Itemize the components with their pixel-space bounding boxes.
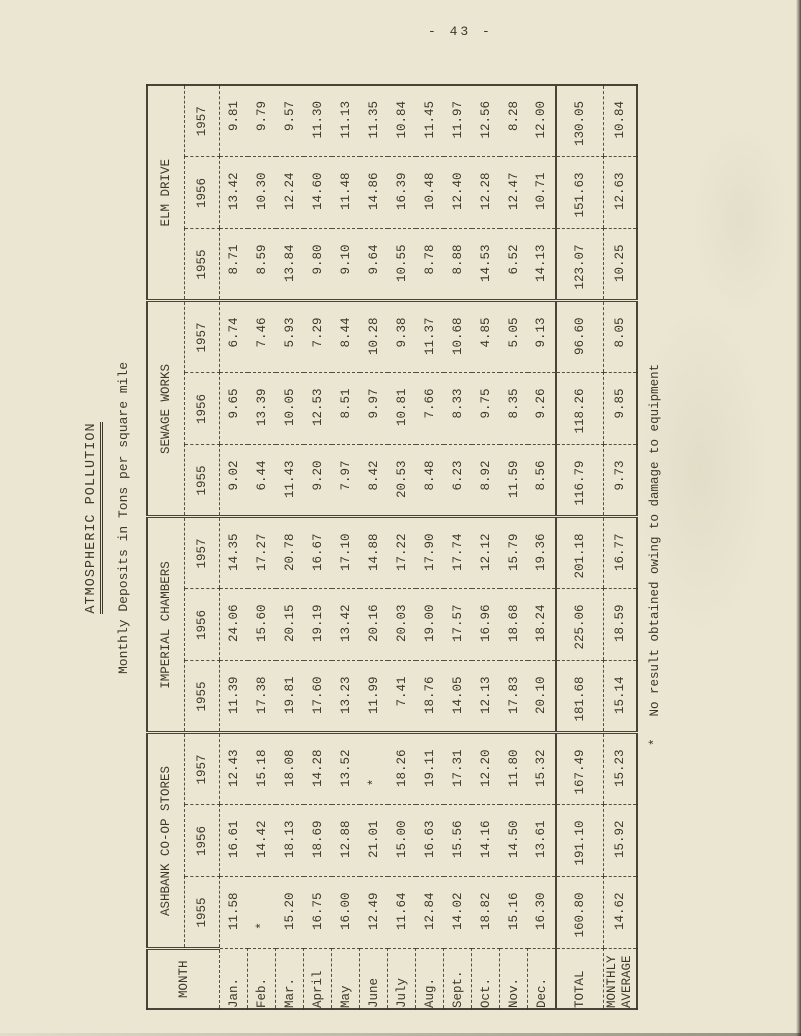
total-value-cell: 191.10	[556, 805, 604, 877]
value-cell: 18.68	[500, 589, 528, 661]
month-cell: Nov.	[500, 949, 528, 1009]
footnote-text: No result obtained owing to damage to eq…	[648, 364, 662, 717]
header-row-years: 1955195619571955195619571955195619571955…	[185, 85, 220, 1009]
value-cell: 18.13	[276, 805, 304, 877]
value-cell: 13.84	[276, 229, 304, 301]
month-row: Aug.12.8416.6319.1118.7619.0017.908.487.…	[416, 85, 444, 1009]
value-cell: 12.13	[472, 661, 500, 733]
value-cell: 6.52	[500, 229, 528, 301]
value-cell: 11.39	[220, 661, 248, 733]
value-cell: 9.97	[360, 373, 388, 445]
value-cell: 17.60	[304, 661, 332, 733]
year-header: 1956	[185, 157, 220, 229]
value-cell: 10.48	[416, 157, 444, 229]
value-cell: 10.68	[444, 301, 472, 373]
value-cell: 8.51	[332, 373, 360, 445]
month-row: Mar.15.2018.1318.0819.8120.1520.7811.431…	[276, 85, 304, 1009]
value-cell: 17.38	[248, 661, 276, 733]
value-cell: 11.13	[332, 85, 360, 157]
total-value-cell: 123.07	[556, 229, 604, 301]
value-cell: 14.13	[528, 229, 557, 301]
value-cell: 7.29	[304, 301, 332, 373]
value-cell: 14.88	[360, 517, 388, 589]
total-value-cell: 201.18	[556, 517, 604, 589]
value-cell: 16.00	[332, 877, 360, 949]
value-cell: 9.20	[304, 445, 332, 517]
value-cell: 19.81	[276, 661, 304, 733]
value-cell: 10.71	[528, 157, 557, 229]
value-cell: 20.53	[388, 445, 416, 517]
value-cell: 20.15	[276, 589, 304, 661]
value-cell: 19.11	[416, 733, 444, 805]
value-cell: 17.83	[500, 661, 528, 733]
value-cell: 24.06	[220, 589, 248, 661]
month-row: Oct.18.8214.1612.2012.1316.9612.128.929.…	[472, 85, 500, 1009]
value-cell: 5.05	[500, 301, 528, 373]
value-cell: 15.32	[528, 733, 557, 805]
value-cell: 12.00	[528, 85, 557, 157]
month-cell: Dec.	[528, 949, 557, 1009]
rotated-landscape-sheet: ATMOSPHERIC POLLUTION Monthly Deposits i…	[0, 0, 801, 1036]
value-cell: 6.44	[248, 445, 276, 517]
value-cell: 18.82	[472, 877, 500, 949]
month-cell: June	[360, 949, 388, 1009]
value-cell: 18.26	[388, 733, 416, 805]
value-cell: 6.23	[444, 445, 472, 517]
month-cell: Jan.	[220, 949, 248, 1009]
value-cell: 11.80	[500, 733, 528, 805]
month-cell: May	[332, 949, 360, 1009]
value-cell: 17.10	[332, 517, 360, 589]
value-cell: 7.46	[248, 301, 276, 373]
value-cell: 14.02	[444, 877, 472, 949]
document-subtitle: Monthly Deposits in Tons per square mile	[116, 0, 131, 1036]
group-header: SEWAGE WORKS	[147, 301, 185, 517]
footnote: *No result obtained owing to damage to e…	[648, 364, 662, 746]
value-cell: 5.93	[276, 301, 304, 373]
value-cell: 7.97	[332, 445, 360, 517]
pollution-deposits-table: MONTHASHBANK CO-OP STORESIMPERIAL CHAMBE…	[146, 84, 638, 1010]
value-cell: 9.81	[220, 85, 248, 157]
value-cell: 8.56	[528, 445, 557, 517]
value-cell: 9.75	[472, 373, 500, 445]
value-cell: 12.47	[500, 157, 528, 229]
value-cell: 17.74	[444, 517, 472, 589]
document-title-text: ATMOSPHERIC POLLUTION	[84, 422, 103, 613]
value-cell: 8.92	[472, 445, 500, 517]
total-value-cell: 130.05	[556, 85, 604, 157]
value-cell: 8.44	[332, 301, 360, 373]
value-cell: 19.00	[416, 589, 444, 661]
value-cell: 11.35	[360, 85, 388, 157]
value-cell: 11.43	[276, 445, 304, 517]
total-value-cell: 151.63	[556, 157, 604, 229]
average-label-cell: MONTHLY AVERAGE	[604, 949, 638, 1009]
value-cell: 18.08	[276, 733, 304, 805]
value-cell: 12.84	[416, 877, 444, 949]
value-cell: 13.42	[332, 589, 360, 661]
year-header: 1956	[185, 373, 220, 445]
value-cell: 18.69	[304, 805, 332, 877]
month-row: Nov.15.1614.5011.8017.8318.6815.7911.598…	[500, 85, 528, 1009]
value-cell: 8.28	[500, 85, 528, 157]
year-header: 1956	[185, 589, 220, 661]
value-cell: 20.78	[276, 517, 304, 589]
value-cell: 8.88	[444, 229, 472, 301]
value-cell: 15.16	[500, 877, 528, 949]
value-cell: 17.31	[444, 733, 472, 805]
value-cell: 10.05	[276, 373, 304, 445]
year-header: 1957	[185, 733, 220, 805]
average-value-cell: 9.85	[604, 373, 638, 445]
value-cell: 20.10	[528, 661, 557, 733]
value-cell: 15.60	[248, 589, 276, 661]
total-value-cell: 96.60	[556, 301, 604, 373]
value-cell: 12.53	[304, 373, 332, 445]
year-header: 1955	[185, 445, 220, 517]
value-cell: 16.61	[220, 805, 248, 877]
month-cell: Oct.	[472, 949, 500, 1009]
scan-edge-shadow-right	[796, 0, 801, 1036]
value-cell: 11.97	[444, 85, 472, 157]
average-value-cell: 15.14	[604, 661, 638, 733]
header-row-locations: MONTHASHBANK CO-OP STORESIMPERIAL CHAMBE…	[147, 85, 185, 1009]
year-header: 1957	[185, 301, 220, 373]
value-cell: 10.30	[248, 157, 276, 229]
value-cell: 10.55	[388, 229, 416, 301]
year-header: 1955	[185, 229, 220, 301]
value-cell: 14.16	[472, 805, 500, 877]
month-row: Dec.16.3013.6115.3220.1018.2419.368.569.…	[528, 85, 557, 1009]
value-cell: 10.28	[360, 301, 388, 373]
value-cell: 8.35	[500, 373, 528, 445]
month-row: May16.0012.8813.5213.2313.4217.107.978.5…	[332, 85, 360, 1009]
average-value-cell: 10.84	[604, 85, 638, 157]
table-body: Jan.11.5816.6112.4311.3924.0614.359.029.…	[220, 85, 638, 1009]
value-cell: 17.27	[248, 517, 276, 589]
month-row: June12.4921.01*11.9920.1614.888.429.9710…	[360, 85, 388, 1009]
value-cell: 14.50	[500, 805, 528, 877]
value-cell: 16.39	[388, 157, 416, 229]
value-cell: 11.37	[416, 301, 444, 373]
value-cell: 12.24	[276, 157, 304, 229]
value-cell: 14.05	[444, 661, 472, 733]
month-row: July11.6415.0018.267.4120.0317.2220.5310…	[388, 85, 416, 1009]
value-cell: 9.80	[304, 229, 332, 301]
month-row: Sept.14.0215.5617.3114.0517.5717.746.238…	[444, 85, 472, 1009]
footnote-asterisk-marker: *	[648, 738, 662, 746]
average-value-cell: 9.73	[604, 445, 638, 517]
month-cell: Mar.	[276, 949, 304, 1009]
group-header: IMPERIAL CHAMBERS	[147, 517, 185, 733]
value-cell: 11.58	[220, 877, 248, 949]
value-cell: 8.59	[248, 229, 276, 301]
value-cell: 16.67	[304, 517, 332, 589]
value-cell: 21.01	[360, 805, 388, 877]
value-cell: 18.76	[416, 661, 444, 733]
month-cell: Aug.	[416, 949, 444, 1009]
value-cell: 16.75	[304, 877, 332, 949]
value-cell: 17.90	[416, 517, 444, 589]
total-value-cell: 225.06	[556, 589, 604, 661]
average-value-cell: 15.92	[604, 805, 638, 877]
value-cell: 12.28	[472, 157, 500, 229]
value-cell: 12.40	[444, 157, 472, 229]
value-cell: 15.00	[388, 805, 416, 877]
value-cell: 12.43	[220, 733, 248, 805]
total-row: TOTAL160.80191.10167.49181.68225.06201.1…	[556, 85, 604, 1009]
value-cell: 8.42	[360, 445, 388, 517]
value-cell: 13.39	[248, 373, 276, 445]
value-cell: 9.10	[332, 229, 360, 301]
month-cell: July	[388, 949, 416, 1009]
total-value-cell: 118.26	[556, 373, 604, 445]
total-value-cell: 167.49	[556, 733, 604, 805]
value-cell: 11.59	[500, 445, 528, 517]
value-cell: 16.63	[416, 805, 444, 877]
average-value-cell: 8.05	[604, 301, 638, 373]
value-cell: 9.64	[360, 229, 388, 301]
value-cell: 9.13	[528, 301, 557, 373]
value-cell: 16.96	[472, 589, 500, 661]
value-cell: 8.71	[220, 229, 248, 301]
value-cell: 15.18	[248, 733, 276, 805]
year-header: 1956	[185, 805, 220, 877]
value-cell: 16.30	[528, 877, 557, 949]
value-cell: 14.86	[360, 157, 388, 229]
value-cell: 20.16	[360, 589, 388, 661]
year-header: 1955	[185, 661, 220, 733]
total-label-cell: TOTAL	[556, 949, 604, 1009]
value-cell: 14.53	[472, 229, 500, 301]
average-value-cell: 18.59	[604, 589, 638, 661]
value-cell: 8.78	[416, 229, 444, 301]
value-cell: 12.88	[332, 805, 360, 877]
year-header: 1955	[185, 877, 220, 949]
average-row: MONTHLY AVERAGE14.6215.9215.2315.1418.59…	[604, 85, 638, 1009]
total-value-cell: 116.79	[556, 445, 604, 517]
value-cell: 11.45	[416, 85, 444, 157]
value-cell: 9.65	[220, 373, 248, 445]
value-cell: 7.66	[416, 373, 444, 445]
group-header: ASHBANK CO-OP STORES	[147, 733, 185, 949]
value-cell: 17.22	[388, 517, 416, 589]
average-value-cell: 16.77	[604, 517, 638, 589]
value-cell: 15.56	[444, 805, 472, 877]
value-cell: 12.56	[472, 85, 500, 157]
year-header: 1957	[185, 85, 220, 157]
value-cell: 13.52	[332, 733, 360, 805]
value-cell: 9.38	[388, 301, 416, 373]
value-cell: 11.64	[388, 877, 416, 949]
scanned-report-page: - 43 - ATMOSPHERIC POLLUTION Monthly Dep…	[0, 0, 801, 1036]
total-value-cell: 160.80	[556, 877, 604, 949]
value-cell: 19.36	[528, 517, 557, 589]
month-row: Jan.11.5816.6112.4311.3924.0614.359.029.…	[220, 85, 248, 1009]
value-cell: 11.30	[304, 85, 332, 157]
value-cell: 9.79	[248, 85, 276, 157]
no-result-asterisk-cell: *	[248, 877, 276, 949]
value-cell: 20.03	[388, 589, 416, 661]
value-cell: 12.20	[472, 733, 500, 805]
average-value-cell: 12.63	[604, 157, 638, 229]
value-cell: 12.12	[472, 517, 500, 589]
value-cell: 18.24	[528, 589, 557, 661]
group-header: ELM DRIVE	[147, 85, 185, 301]
value-cell: 15.79	[500, 517, 528, 589]
month-cell: Feb.	[248, 949, 276, 1009]
value-cell: 19.19	[304, 589, 332, 661]
table-header: MONTHASHBANK CO-OP STORESIMPERIAL CHAMBE…	[147, 85, 220, 1009]
value-cell: 17.57	[444, 589, 472, 661]
average-value-cell: 15.23	[604, 733, 638, 805]
month-row: Feb.*14.4215.1817.3815.6017.276.4413.397…	[248, 85, 276, 1009]
value-cell: 13.42	[220, 157, 248, 229]
value-cell: 13.61	[528, 805, 557, 877]
value-cell: 12.49	[360, 877, 388, 949]
value-cell: 14.42	[248, 805, 276, 877]
value-cell: 8.48	[416, 445, 444, 517]
average-value-cell: 10.25	[604, 229, 638, 301]
value-cell: 10.84	[388, 85, 416, 157]
value-cell: 7.41	[388, 661, 416, 733]
value-cell: 15.20	[276, 877, 304, 949]
value-cell: 6.74	[220, 301, 248, 373]
value-cell: 11.99	[360, 661, 388, 733]
average-value-cell: 14.62	[604, 877, 638, 949]
value-cell: 9.02	[220, 445, 248, 517]
no-result-asterisk-cell: *	[360, 733, 388, 805]
month-cell: April	[304, 949, 332, 1009]
value-cell: 14.35	[220, 517, 248, 589]
value-cell: 11.48	[332, 157, 360, 229]
total-value-cell: 181.68	[556, 661, 604, 733]
value-cell: 14.28	[304, 733, 332, 805]
value-cell: 4.85	[472, 301, 500, 373]
value-cell: 14.60	[304, 157, 332, 229]
month-row: April16.7518.6914.2817.6019.1916.679.201…	[304, 85, 332, 1009]
value-cell: 9.57	[276, 85, 304, 157]
column-header-month: MONTH	[147, 949, 220, 1009]
value-cell: 10.81	[388, 373, 416, 445]
value-cell: 9.26	[528, 373, 557, 445]
value-cell: 8.33	[444, 373, 472, 445]
month-cell: Sept.	[444, 949, 472, 1009]
document-title: ATMOSPHERIC POLLUTION	[84, 0, 99, 1036]
value-cell: 13.23	[332, 661, 360, 733]
year-header: 1957	[185, 517, 220, 589]
